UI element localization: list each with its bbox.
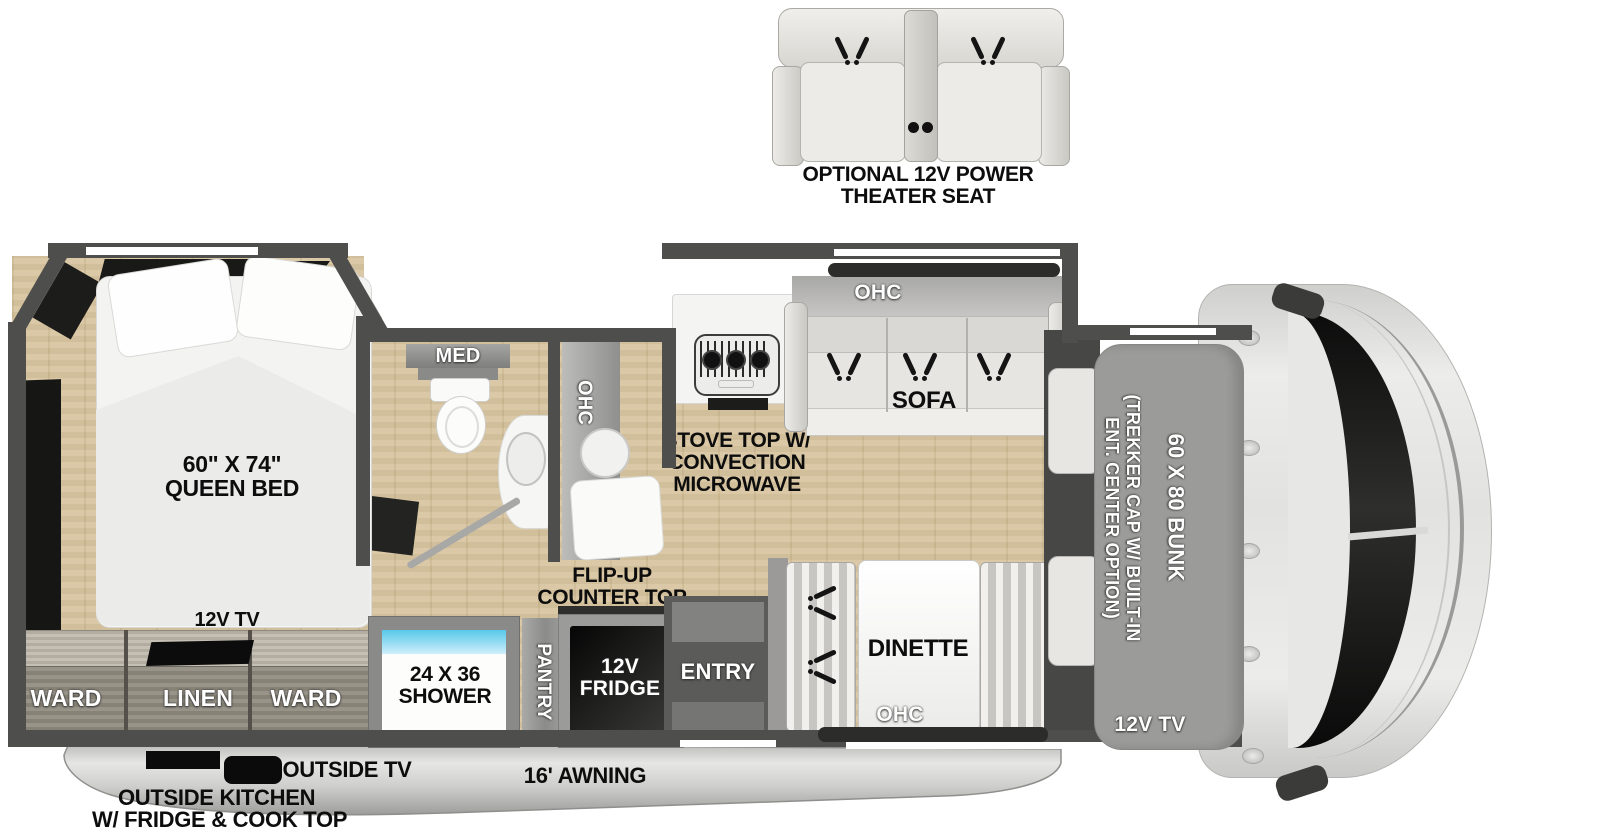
- shower-size-label: 24 X 36: [385, 664, 505, 686]
- dinette-label: DINETTE: [860, 636, 976, 661]
- outside-kitchen-label-line1: OUTSIDE KITCHEN: [118, 786, 303, 809]
- theater-seat-cushion-right: [936, 62, 1042, 162]
- linen-label: LINEN: [150, 686, 246, 710]
- sink-icon: [506, 432, 546, 486]
- bunk-option-line1: (TREKKER CAP W/ BUILT-IN: [1123, 394, 1143, 641]
- burner-icon: [750, 350, 770, 370]
- stitch-mark-icon: [807, 645, 837, 689]
- sofa-overhead-cabinet: [792, 276, 1062, 320]
- stove-knobs-icon: [718, 380, 754, 388]
- stitch-mark-icon: [830, 36, 874, 66]
- sofa-cushion-divider: [966, 318, 968, 412]
- dinette-frame-left: [768, 558, 788, 740]
- bathroom-ohc-label: OHC: [574, 368, 595, 438]
- bunk-tv-label: 12V TV: [1108, 714, 1192, 736]
- theater-seat-label-line2: THEATER SEAT: [768, 186, 1068, 208]
- shower-glass: [382, 630, 506, 654]
- theater-seat-graphic: [772, 4, 1068, 166]
- bed-name-label: QUEEN BED: [142, 476, 322, 500]
- window-slit: [86, 247, 258, 255]
- dinette-bench-right: [980, 562, 1050, 732]
- wardrobe-right-label: WARD: [262, 686, 350, 710]
- sofa-ohc-label: OHC: [848, 282, 908, 304]
- window-slit: [834, 249, 1060, 256]
- window-slit: [0, 386, 8, 632]
- kitchen-divider-wall: [662, 328, 676, 468]
- window-slit: [1130, 328, 1216, 335]
- slide-topper: [818, 727, 1048, 742]
- bunk-size-label: 60 X 80 BUNK: [1164, 378, 1187, 638]
- cupholder-icon: [908, 122, 919, 133]
- stitch-mark-icon: [966, 36, 1010, 66]
- cab-seat: [1048, 368, 1100, 474]
- outside-kitchen-door: [146, 751, 220, 769]
- burner-icon: [726, 350, 746, 370]
- bedroom-tv: [146, 640, 254, 666]
- cupholder-icon: [922, 122, 933, 133]
- bed-size-label: 60" X 74": [142, 452, 322, 476]
- theater-seat-label-line1: OPTIONAL 12V POWER: [768, 164, 1068, 186]
- stove-label-line3: MICROWAVE: [647, 474, 827, 496]
- shower-label: SHOWER: [385, 686, 505, 708]
- outside-kitchen-label-line2: W/ FRIDGE & COOK TOP: [92, 808, 332, 831]
- cabinet-divider: [124, 630, 128, 742]
- awning-label: 16' AWNING: [505, 764, 665, 787]
- stitch-mark-icon: [822, 352, 866, 382]
- stitch-mark-icon: [807, 581, 837, 625]
- stitch-mark-icon: [972, 352, 1016, 382]
- entry-threshold: [680, 740, 776, 747]
- slide-topper: [828, 263, 1060, 277]
- entry-step: [672, 702, 764, 732]
- theater-seat-cushion-left: [800, 62, 906, 162]
- clearance-light-icon: [1242, 748, 1264, 764]
- bunk-option-label: (TREKKER CAP W/ BUILT-IN ENT. CENTER OPT…: [1101, 348, 1143, 688]
- burner-icon: [702, 350, 722, 370]
- rear-wall: [8, 322, 26, 744]
- dinette-ohc-label: OHC: [870, 704, 930, 726]
- theater-seat-arm-right: [1038, 66, 1070, 166]
- pantry-label: PANTRY: [533, 627, 553, 737]
- flip-counter-label-line1: FLIP-UP: [547, 565, 677, 587]
- outside-tv-label: OUTSIDE TV: [272, 758, 422, 781]
- fridge-label-line2: FRIDGE: [575, 678, 665, 700]
- stitch-mark-icon: [898, 352, 942, 382]
- kitchen-drawer: [708, 398, 768, 410]
- toilet-seat: [445, 406, 479, 448]
- rv-floorplan-canvas: OPTIONAL 12V POWER THEATER SEAT 60" X 74…: [0, 0, 1600, 835]
- sofa-arm-left: [784, 302, 808, 432]
- theater-seat-console: [904, 10, 938, 162]
- fridge-label-line1: 12V: [575, 656, 665, 678]
- entry-label: ENTRY: [676, 660, 760, 683]
- medicine-cabinet-label: MED: [406, 346, 510, 367]
- bedroom-tv-label: 12V TV: [182, 610, 272, 631]
- sofa-label: SOFA: [884, 388, 964, 413]
- bedroom-bathroom-wall: [356, 316, 370, 566]
- entry-step: [672, 602, 764, 642]
- bathroom-divider-wall: [548, 328, 560, 562]
- bunk-option-line2: ENT. CENTER OPTION): [1102, 417, 1122, 619]
- bathroom-top-wall: [360, 328, 674, 342]
- cab-seat: [1048, 556, 1100, 666]
- wardrobe-left-label: WARD: [24, 686, 108, 710]
- cabinet-knob-icon: [580, 428, 630, 478]
